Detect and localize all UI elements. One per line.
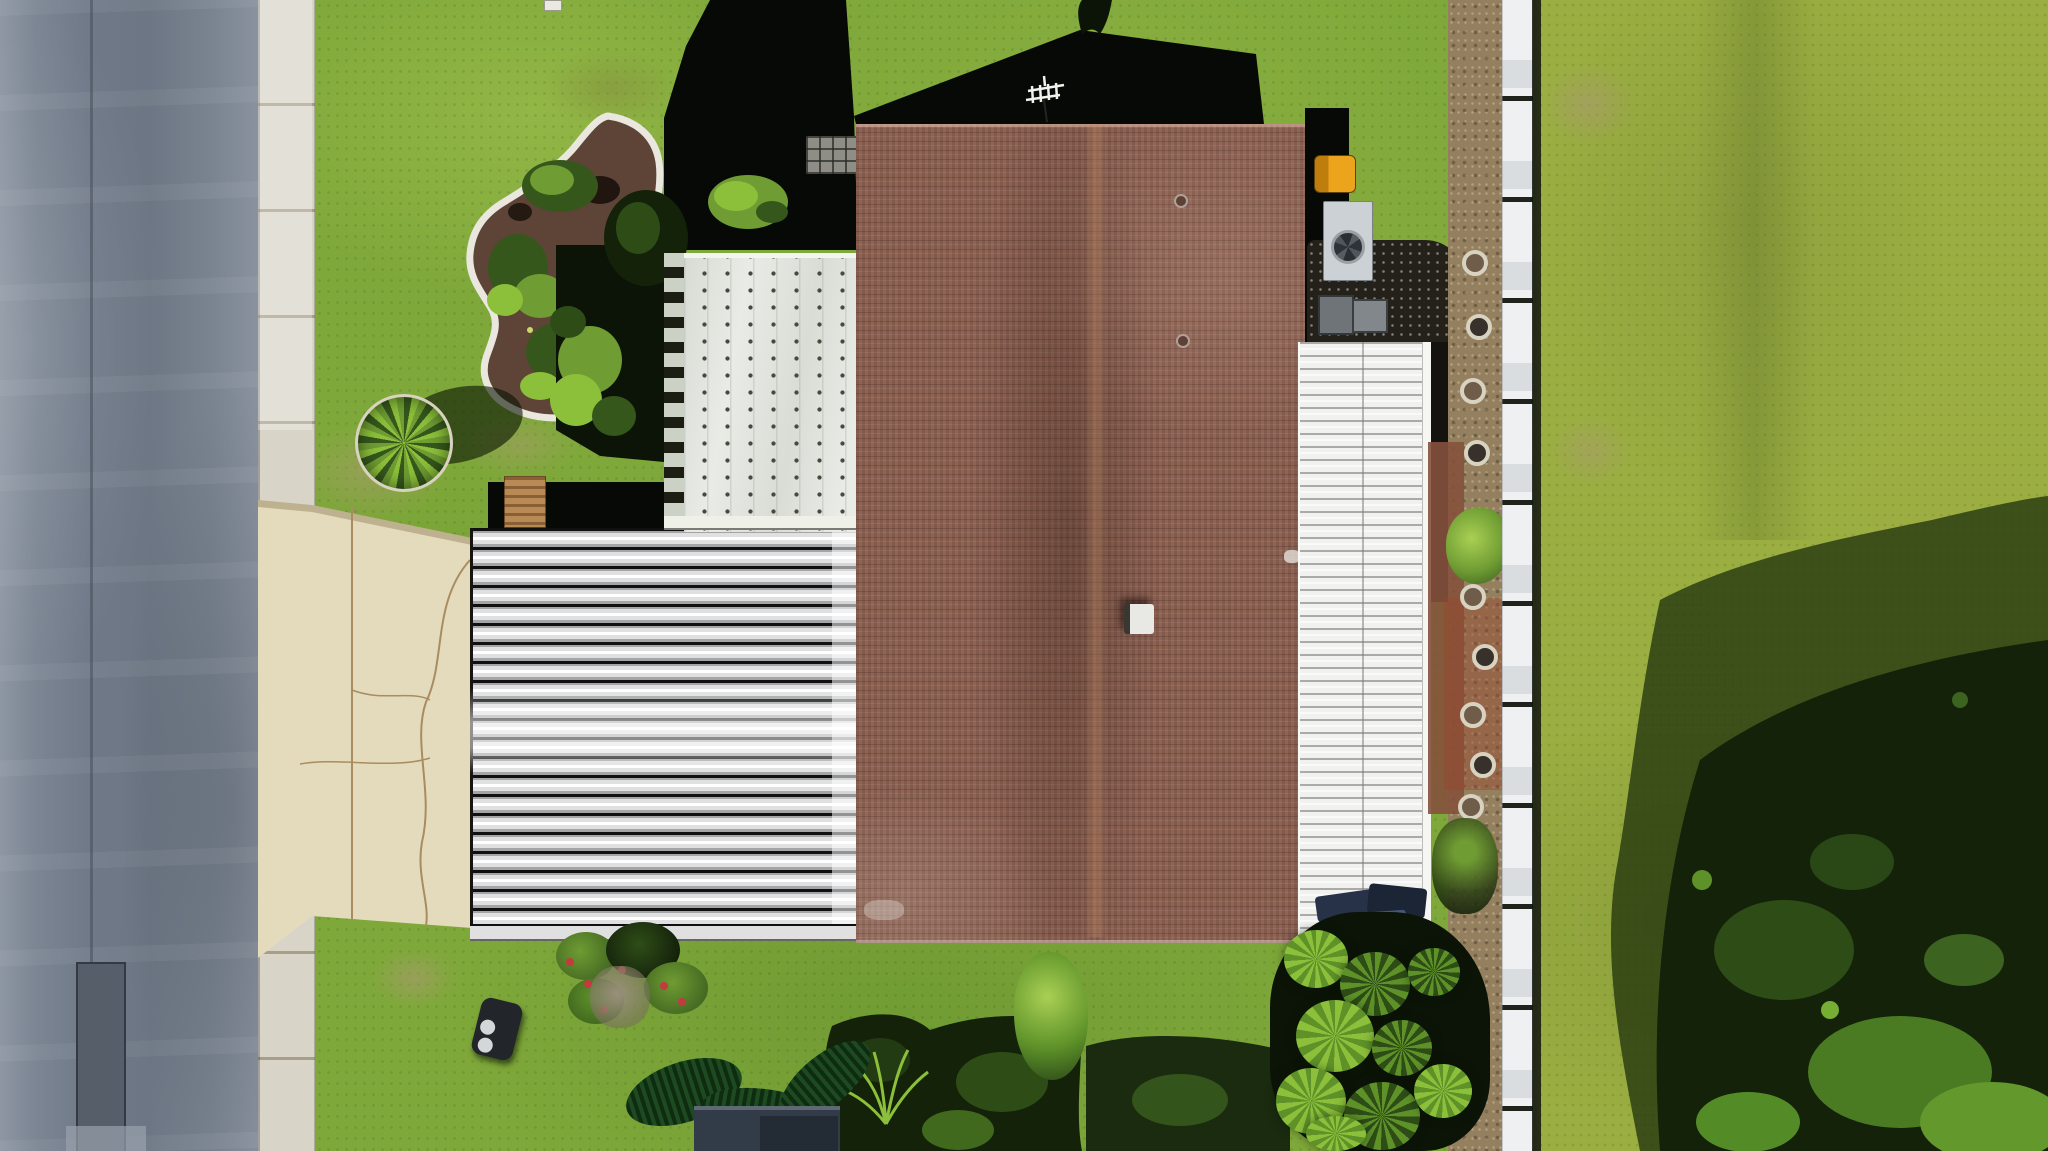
stone-pad [806, 136, 856, 174]
house-shadow [846, 0, 1276, 130]
lanai-roof-seam [1362, 342, 1364, 935]
garden-shed [694, 1106, 840, 1151]
shrub [644, 962, 708, 1014]
stepping-stone [1472, 644, 1498, 670]
bright-shrub [1014, 952, 1088, 1080]
stepping-stone [1460, 378, 1486, 404]
stepping-stone [1464, 440, 1490, 466]
grill-lid-dot [479, 1018, 497, 1036]
carport-paint-band [470, 688, 858, 774]
yellow-barrel [1314, 155, 1356, 193]
stepping-stone [1460, 584, 1486, 610]
road-repair-patch [76, 962, 126, 1151]
utility-marker [544, 0, 562, 11]
carport-weathered-edge [832, 528, 858, 937]
utility-bin [1352, 299, 1388, 333]
schefflera-leaf [1408, 948, 1460, 996]
stepping-stone [1470, 752, 1496, 778]
schefflera-leaf [1414, 1064, 1472, 1118]
brown-shingle-roof [856, 124, 1305, 943]
stepping-stone [1458, 794, 1484, 820]
schefflera-leaf [1296, 1000, 1374, 1072]
white-fence [1502, 0, 1533, 1151]
schefflera-leaf [1306, 1116, 1366, 1151]
panel-roof-fascia [664, 516, 858, 530]
roof-vent-box [1124, 604, 1154, 634]
schefflera-leaf [1284, 930, 1348, 988]
roof-worn-spot [864, 900, 904, 920]
bench [504, 476, 546, 528]
round-plant-bed [355, 394, 453, 492]
road-seam [90, 0, 93, 965]
lanai-slat-roof [1300, 342, 1430, 935]
asphalt-road [0, 0, 258, 1151]
roof-vent [1174, 194, 1188, 208]
shed-roof-section [760, 1116, 838, 1151]
side-yard-dirt-patch [1540, 62, 1636, 146]
red-flower [660, 982, 668, 990]
large-tree-canopy [1540, 460, 2048, 1151]
ac-fan-icon [1331, 230, 1365, 264]
panel-roof-trim [664, 253, 684, 527]
red-flower [678, 998, 686, 1006]
road-gutter [66, 1126, 146, 1151]
red-flower [566, 958, 574, 966]
grill-lid-dot [476, 1036, 494, 1054]
sidewalk-highlight [258, 0, 312, 430]
stepping-stone [1466, 314, 1492, 340]
stone-patch [590, 966, 650, 1028]
aerial-photo [0, 0, 2048, 1151]
stepping-stone [1462, 250, 1488, 276]
concrete-driveway [255, 488, 475, 963]
path-plants [1432, 818, 1498, 914]
utility-bin [1318, 295, 1354, 335]
ac-unit [1323, 201, 1373, 281]
stepping-stone [1460, 702, 1486, 728]
roof-vent [1176, 334, 1190, 348]
worn-grass-path [1695, 0, 1815, 540]
roof-streak [1085, 124, 1107, 937]
schefflera-leaf [1372, 1020, 1432, 1076]
screened-panel-roof [684, 253, 858, 532]
